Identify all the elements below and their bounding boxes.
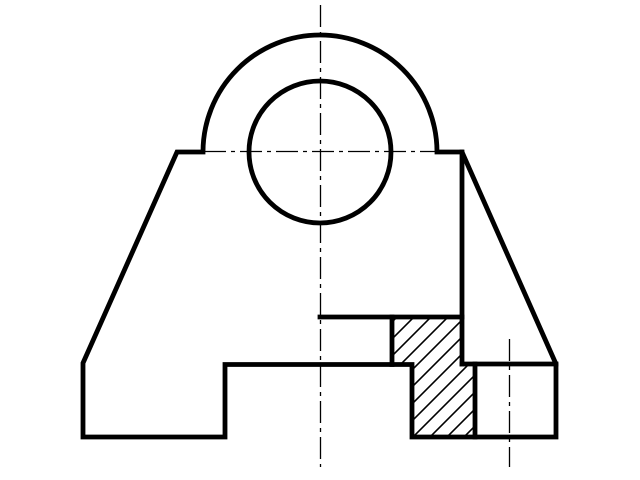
engineering-drawing-svg	[0, 0, 640, 480]
part-outline	[83, 35, 556, 437]
drawing-sheet	[0, 0, 640, 480]
